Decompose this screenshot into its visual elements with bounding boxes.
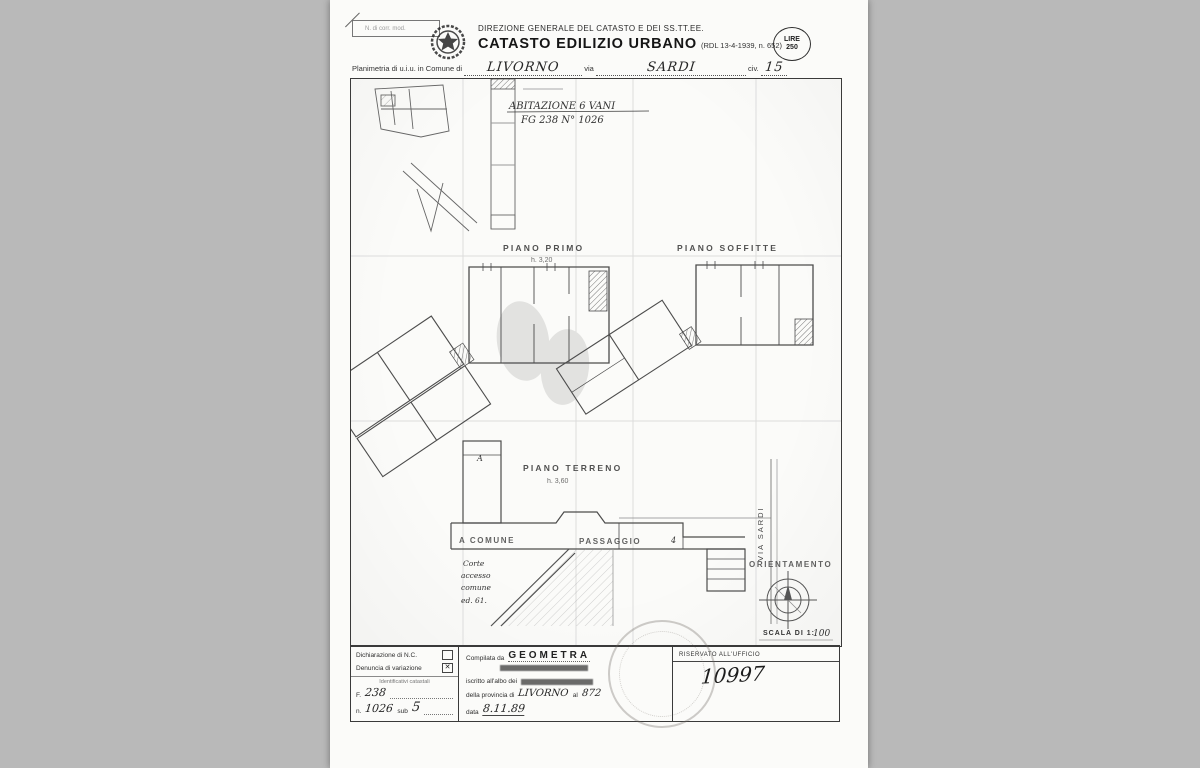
handwritten-corte-note: Corte accesso comune ed. 61. xyxy=(461,559,491,605)
checkbox-variazione: ✕ xyxy=(442,663,453,673)
plan-fragment-topleft xyxy=(375,85,477,231)
floor-plan-sheet: ABITAZIONE 6 VANI FG 238 N° 1026 PIANO P… xyxy=(350,78,842,647)
corte-note-4: ed. 61. xyxy=(461,596,487,605)
numero-label: n. xyxy=(356,708,361,715)
corner-reference-box: N. di corr. mod. xyxy=(352,20,440,37)
al-label: al xyxy=(573,692,578,699)
room-mark-a: A xyxy=(476,454,483,463)
scale-note: SCALA DI 1: 100 xyxy=(759,629,833,640)
floor-label-soffitte: PIANO SOFFITTE xyxy=(677,243,778,253)
parcel-note-line1: ABITAZIONE 6 VANI xyxy=(508,101,616,112)
redacted-name-bar xyxy=(500,665,588,671)
label-a-comune: A COMUNE xyxy=(459,536,515,545)
footer-left-divider xyxy=(351,676,458,677)
lire-stamp-word: LIRE xyxy=(784,36,800,44)
sub-value: 5 xyxy=(411,700,421,715)
numero-value: 1026 xyxy=(365,702,394,715)
label-orientamento: ORIENTAMENTO xyxy=(749,560,832,569)
civ-value: 15 xyxy=(764,60,784,75)
scala-value: 100 xyxy=(813,629,830,639)
comune-field: LIVORNO xyxy=(464,60,582,76)
planimetria-form-line: Planimetria di u.i.u. in Comune di LIVOR… xyxy=(352,60,846,76)
sub-label: sub xyxy=(397,708,407,715)
state-emblem-icon xyxy=(428,22,468,62)
foglio-dots xyxy=(390,690,453,699)
provincia-value: LIVORNO xyxy=(518,688,569,699)
data-label: data xyxy=(466,709,479,716)
scan-watermark xyxy=(492,298,593,408)
via-field: SARDI xyxy=(596,60,746,76)
corner-note: N. di corr. mod. xyxy=(365,26,406,32)
footer-compiler: Compilata da GEOMETRA iscritto all'albo … xyxy=(459,646,673,721)
lire-250-stamp: LIRE 250 xyxy=(773,27,811,61)
corridor-dim: 4 xyxy=(670,536,676,545)
riservato-ufficio-title: RISERVATO ALL'UFFICIO xyxy=(673,649,839,662)
catastali-title: Identificativi catastali xyxy=(356,679,453,685)
civ-field: 15 xyxy=(761,60,787,76)
checkbox-nuova-costruzione xyxy=(442,650,453,660)
floor-label-primo: PIANO PRIMO xyxy=(503,243,584,253)
protocol-number: 10997 xyxy=(700,661,766,688)
civ-label: civ. xyxy=(748,64,759,73)
foglio-value: 238 xyxy=(364,686,386,699)
albo-label: iscritto all'albo dei xyxy=(466,678,517,685)
label-via-sardi-vertical: VIA SARDI xyxy=(756,506,765,561)
al-value: 872 xyxy=(581,688,601,699)
provincia-label: della provincia di xyxy=(466,692,514,699)
floor-height-primo: h. 3,20 xyxy=(531,257,553,264)
form-prefix-label: Planimetria di u.i.u. in Comune di xyxy=(352,64,462,73)
decl-nc-label: Dichiarazione di N.C. xyxy=(356,652,417,659)
via-value: SARDI xyxy=(646,60,696,75)
compilata-value: GEOMETRA xyxy=(508,650,590,662)
floor-height-terreno: h. 3,60 xyxy=(547,478,569,485)
scala-label: SCALA DI 1: xyxy=(763,630,815,637)
footer-form: Dichiarazione di N.C. Denuncia di variaz… xyxy=(350,645,840,722)
floor-label-terreno: PIANO TERRENO xyxy=(523,463,622,473)
scanned-cadastral-form: N. di corr. mod. DIREZIONE GENERALE DEL … xyxy=(330,0,868,768)
form-title: CATASTO EDILIZIO URBANO xyxy=(478,36,697,52)
lire-stamp-amount: 250 xyxy=(786,44,798,52)
sub-dots xyxy=(424,706,453,715)
via-label: via xyxy=(584,64,594,73)
data-value: 8.11.89 xyxy=(482,702,525,716)
street-boundary xyxy=(771,459,777,624)
corte-note-2: accesso xyxy=(461,571,491,580)
handwritten-parcel-note: ABITAZIONE 6 VANI FG 238 N° 1026 xyxy=(507,101,649,126)
decl-var-label: Denuncia di variazione xyxy=(356,665,422,672)
compilata-label: Compilata da xyxy=(466,655,504,662)
agency-line: DIREZIONE GENERALE DEL CATASTO E DEI SS.… xyxy=(478,24,704,33)
footer-declarations: Dichiarazione di N.C. Denuncia di variaz… xyxy=(351,646,459,721)
foglio-label: F. xyxy=(356,692,361,699)
form-title-reference: (RDL 13-4-1939, n. 652) xyxy=(701,41,782,50)
corte-note-3: comune xyxy=(461,583,491,592)
corte-note-1: Corte xyxy=(463,559,485,568)
label-passaggio: PASSAGGIO xyxy=(579,537,641,546)
comune-value: LIVORNO xyxy=(486,60,560,75)
compass-rose-icon xyxy=(759,571,817,629)
redacted-albo-bar xyxy=(521,679,593,685)
parcel-note-line2: FG 238 N° 1026 xyxy=(520,115,604,126)
footer-office-box: RISERVATO ALL'UFFICIO 10997 xyxy=(673,646,839,721)
